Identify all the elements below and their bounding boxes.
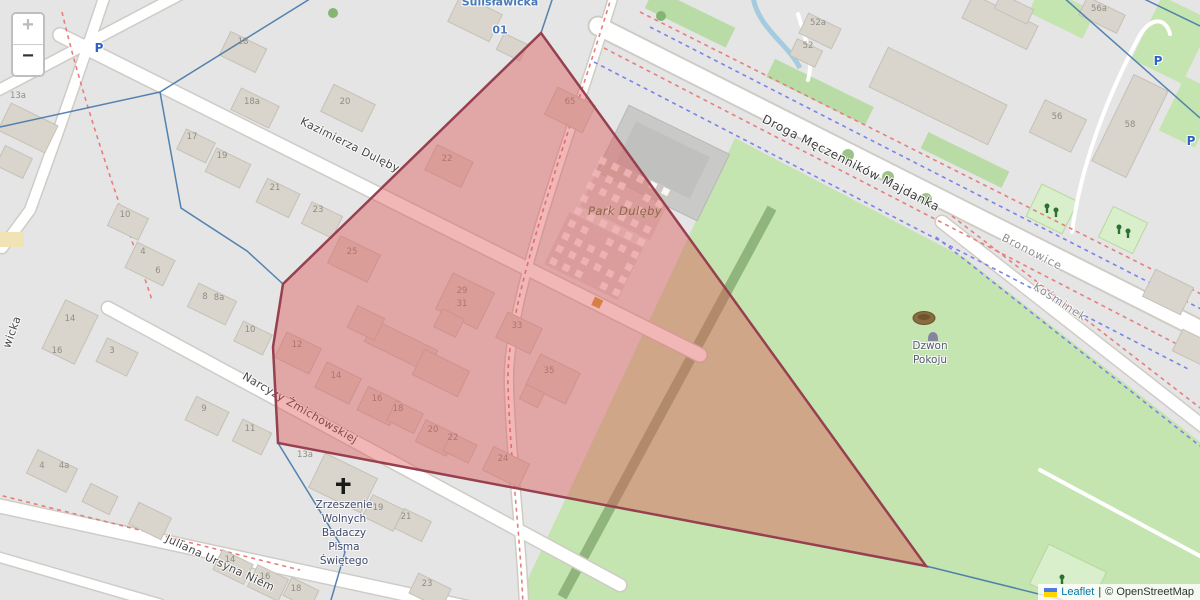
leaflet-map[interactable]: Kazimierza DulębyNarcyzy ŻmichowskiejJul… (0, 0, 1200, 600)
attribution-separator: | (1098, 586, 1101, 598)
zoom-control: + − (11, 12, 45, 77)
zoom-out-button[interactable]: − (13, 44, 43, 75)
ukraine-flag-icon (1044, 588, 1057, 597)
zoom-in-button[interactable]: + (13, 14, 43, 44)
attribution-bar: Leaflet | © OpenStreetMap (1038, 584, 1200, 600)
osm-attribution-text: © OpenStreetMap (1105, 586, 1194, 598)
leaflet-link[interactable]: Leaflet (1061, 586, 1094, 598)
